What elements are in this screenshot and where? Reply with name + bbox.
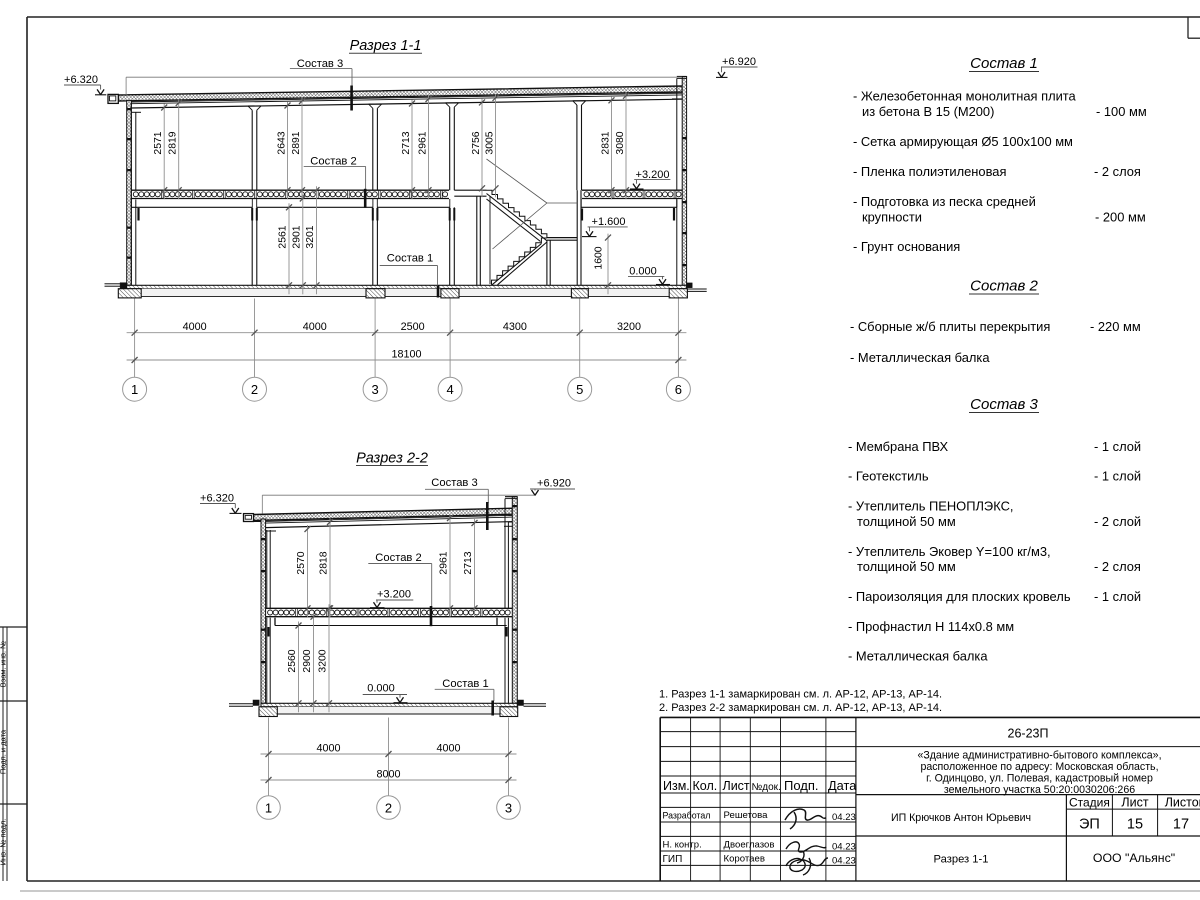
svg-text:Состав 2: Состав 2 [970,278,1038,295]
svg-text:2570: 2570 [296,551,307,574]
svg-text:+6.320: +6.320 [64,74,98,86]
svg-text:3: 3 [371,382,378,397]
svg-text:Состав 1: Состав 1 [387,253,433,265]
svg-text:Разрез 2-2: Разрез 2-2 [356,450,428,466]
svg-text:Подп.: Подп. [784,778,819,793]
svg-text:Изм.: Изм. [663,779,690,793]
svg-text:ИП Крючков Антон Юрьевич: ИП Крючков Антон Юрьевич [891,812,1031,824]
svg-text:4000: 4000 [436,742,460,754]
svg-text:толщиной 50 мм: толщиной 50 мм [857,559,956,574]
svg-text:2. Разрез 2-2 замаркирован см.: 2. Разрез 2-2 замаркирован см. л. АР-12,… [659,702,942,714]
svg-text:Коротаев: Коротаев [724,854,765,865]
svg-text:2961: 2961 [439,551,450,574]
svg-text:- Подготовка из песка средней: - Подготовка из песка средней [853,194,1036,209]
svg-text:Лист: Лист [723,779,750,793]
svg-text:18100: 18100 [391,348,421,360]
svg-text:ЭП: ЭП [1079,817,1100,833]
svg-text:толщиной 50 мм: толщиной 50 мм [857,514,956,529]
svg-text:2756: 2756 [471,131,482,154]
svg-text:Взам. инв. №: Взам. инв. № [0,641,8,687]
svg-text:«Здание административно-бытово: «Здание административно-бытового комплек… [917,750,1161,762]
svg-text:№док.: №док. [752,782,781,793]
svg-text:1: 1 [265,800,272,815]
svg-text:Состав 3: Состав 3 [431,477,477,489]
svg-text:2: 2 [251,382,258,397]
svg-text:0.000: 0.000 [367,683,395,695]
svg-text:Двоеглазов: Двоеглазов [724,840,775,851]
svg-text:- 1 слой: - 1 слой [1094,469,1141,484]
svg-text:Кол.: Кол. [693,779,718,793]
svg-text:- Металлическая балка: - Металлическая балка [848,649,988,664]
svg-text:4000: 4000 [316,742,340,754]
svg-text:- 220 мм: - 220 мм [1090,319,1141,334]
svg-text:3201: 3201 [305,225,316,248]
svg-text:- Железобетонная монолитная п: - Железобетонная монолитная плита [853,89,1077,104]
svg-text:Решетова: Решетова [724,810,769,821]
svg-text:- 200 мм: - 200 мм [1095,210,1146,225]
svg-text:2571: 2571 [153,131,164,154]
svg-text:26-23П: 26-23П [1008,727,1049,741]
svg-text:Инв. № подл.: Инв. № подл. [0,819,8,866]
svg-text:04.23: 04.23 [832,842,856,853]
svg-text:3005: 3005 [484,131,495,154]
svg-text:Н. контр.: Н. контр. [663,840,702,851]
svg-text:- Профнастил Н 114х0.8 мм: - Профнастил Н 114х0.8 мм [848,619,1014,634]
svg-text:- Пароизоляция для плоских кро: - Пароизоляция для плоских кровель [848,589,1071,604]
svg-text:Состав 2: Состав 2 [310,156,356,168]
svg-text:Листов: Листов [1165,795,1200,809]
svg-text:4: 4 [446,382,453,397]
svg-text:Стадия: Стадия [1069,795,1110,809]
svg-text:земельного участка 50:20:00302: земельного участка 50:20:0030206:266 [944,784,1135,796]
svg-text:1600: 1600 [594,246,605,269]
svg-text:2: 2 [385,800,392,815]
svg-text:- 1 слой: - 1 слой [1094,439,1141,454]
svg-text:- 100 мм: - 100 мм [1096,104,1147,119]
svg-text:ООО "Альянс": ООО "Альянс" [1093,851,1175,865]
svg-text:- Утеплитель ПЕНОПЛЭКС,: - Утеплитель ПЕНОПЛЭКС, [848,499,1013,514]
svg-text:- 2 слой: - 2 слой [1094,514,1141,529]
svg-text:2561: 2561 [278,225,289,248]
svg-text:+1.600: +1.600 [592,216,626,228]
svg-text:2900: 2900 [302,649,313,672]
svg-text:2500: 2500 [401,321,425,333]
svg-text:- Геотекстиль: - Геотекстиль [848,469,929,484]
svg-text:17: 17 [1173,817,1189,833]
svg-text:расположенное по адресу: Моско: расположенное по адресу: Московская обла… [920,761,1158,773]
svg-text:4300: 4300 [503,321,527,333]
svg-text:0.000: 0.000 [629,266,657,278]
svg-text:- Сетка армирующая Ø5 100х100: - Сетка армирующая Ø5 100х100 мм [853,134,1073,149]
svg-text:3200: 3200 [617,321,641,333]
svg-text:Разрез 1-1: Разрез 1-1 [350,38,422,54]
svg-text:- Грунт основания: - Грунт основания [853,239,960,254]
svg-text:2831: 2831 [600,131,611,154]
svg-text:из бетона В 15 (М200): из бетона В 15 (М200) [862,104,994,119]
svg-text:Состав 3: Состав 3 [970,396,1038,413]
svg-text:Состав 1: Состав 1 [442,678,488,690]
svg-text:Лист: Лист [1121,795,1148,809]
svg-text:Состав 2: Состав 2 [375,552,421,564]
svg-text:- Утеплитель Эковер Y=100 кг/м: - Утеплитель Эковер Y=100 кг/м3, [848,544,1051,559]
svg-text:1: 1 [131,382,138,397]
svg-text:3080: 3080 [615,131,626,154]
svg-text:2713: 2713 [401,131,412,154]
svg-text:2901: 2901 [291,225,302,248]
svg-text:+3.200: +3.200 [377,589,411,601]
svg-text:крупности: крупности [862,210,922,225]
svg-text:- Сборные ж/б плиты перекрытия: - Сборные ж/б плиты перекрытия [850,319,1050,334]
svg-text:5: 5 [576,382,583,397]
svg-text:4000: 4000 [183,321,207,333]
svg-text:- 1 слой: - 1 слой [1094,589,1141,604]
svg-text:+3.200: +3.200 [636,169,670,181]
svg-text:Дата: Дата [828,778,857,793]
svg-text:г. Одинцово, ул. Полевая, када: г. Одинцово, ул. Полевая, кадастровый но… [926,773,1153,785]
svg-text:ГИП: ГИП [663,854,683,865]
svg-text:3200: 3200 [318,649,329,672]
svg-text:2643: 2643 [276,131,287,154]
svg-text:- 2 слоя: - 2 слоя [1094,164,1141,179]
svg-text:2961: 2961 [417,131,428,154]
svg-text:+6.920: +6.920 [722,56,756,68]
svg-text:2560: 2560 [287,649,298,672]
svg-text:+6.920: +6.920 [537,478,571,490]
svg-text:Состав 1: Состав 1 [970,55,1038,72]
svg-text:8000: 8000 [376,768,400,780]
svg-text:1. Разрез 1-1 замаркирован см.: 1. Разрез 1-1 замаркирован см. л. АР-12,… [659,689,942,701]
svg-text:Разрез 1-1: Разрез 1-1 [934,854,989,866]
svg-text:- Пленка полиэтиленовая: - Пленка полиэтиленовая [853,164,1006,179]
svg-text:- Мембрана ПВХ: - Мембрана ПВХ [848,439,949,454]
svg-text:04.23: 04.23 [832,856,856,867]
svg-text:2713: 2713 [463,551,474,574]
svg-text:15: 15 [1127,817,1143,833]
svg-text:Состав 3: Состав 3 [297,58,343,70]
svg-text:Подп. и дата: Подп. и дата [0,729,8,774]
svg-text:2818: 2818 [319,551,330,574]
svg-text:4000: 4000 [303,321,327,333]
svg-text:+6.320: +6.320 [200,493,234,505]
svg-text:04.23: 04.23 [832,812,856,823]
svg-text:2819: 2819 [168,131,179,154]
svg-text:- Металлическая балка: - Металлическая балка [850,350,990,365]
svg-text:Разработал: Разработал [663,811,711,821]
svg-text:2891: 2891 [291,131,302,154]
svg-text:6: 6 [675,382,682,397]
svg-text:3: 3 [505,800,512,815]
svg-text:- 2 слоя: - 2 слоя [1094,559,1141,574]
